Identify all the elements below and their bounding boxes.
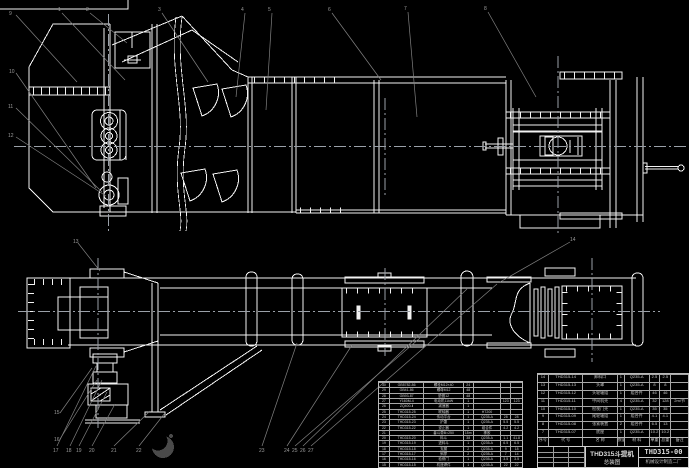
balloon-label: 1: [58, 7, 61, 13]
bom-row: 11 THD315-11 中间机壳 4 Q235-A 32 128 2m/节: [538, 398, 688, 406]
front-view-belt-and-buckets: [174, 17, 247, 231]
bom-header-material: 材 料: [625, 438, 650, 446]
bom-row: 7 THD315-07 底座 1 Q235-A 10.2 10.2: [538, 429, 688, 437]
bom-table-right: 14 THD315-14 卸料口 1 Q235-A 2.5 2.5 13 THD…: [537, 373, 689, 438]
bom-cell-name: 检视门壳: [583, 406, 618, 414]
bom-cell-remark: [671, 413, 688, 421]
revision-grid: [538, 447, 586, 467]
bom-cell-seq: 10: [538, 406, 549, 414]
bom-header-remark: 备注: [671, 438, 688, 446]
bom-cell-code: THD315-08: [549, 421, 584, 429]
drawing-number-cell: THD315-00 机械设计制造二厂: [639, 447, 688, 467]
balloon-label: 16: [54, 437, 60, 443]
bom-cell-total-weight: 2.5: [660, 374, 671, 382]
front-view-boot-section: [483, 72, 684, 228]
bom-cell-code: THD315-12: [549, 390, 584, 398]
balloon-label: 14: [570, 237, 576, 243]
company-name: 机械设计制造二厂: [639, 458, 688, 468]
centerlines: [14, 14, 686, 428]
bom-cell-total-weight: 10.2: [660, 429, 671, 437]
bom-cell-remark: [671, 429, 688, 437]
balloon-label: 7: [404, 6, 407, 12]
bom-row: 8 THD315-08 张紧装置 2 组合件 6.5 13: [538, 421, 688, 429]
bom-cell-material: Q235-A: [474, 462, 502, 467]
bom-cell-unit-weight: 8: [650, 382, 661, 390]
frame-corner: [0, 0, 128, 9]
balloon-label: 27: [308, 448, 314, 454]
bom-cell-seq: 15: [379, 462, 390, 467]
bom-cell-seq: 8: [538, 421, 549, 429]
bom-cell-total-weight: 46: [660, 390, 671, 398]
bom-cell-name: 头轮轴组: [583, 390, 618, 398]
bom-cell-unit-weight: 46: [650, 390, 661, 398]
bom-cell-material: Q235-A: [625, 406, 650, 414]
bom-cell-total-weight: 35: [660, 406, 671, 414]
balloon-label: 13: [73, 239, 79, 245]
bom-cell-name: 机座焊件: [424, 462, 463, 467]
bom-cell-seq: 9: [538, 413, 549, 421]
bom-cell-name: 张紧装置: [583, 421, 618, 429]
bom-cell-unit-weight: 2.5: [650, 374, 661, 382]
crescent-watermark: [149, 432, 175, 459]
drawing-name: 总装图: [604, 458, 621, 466]
plan-view-boot: [487, 268, 622, 357]
bom-row: 10 THD315-10 检视门壳 1 Q235-A 35 35: [538, 406, 688, 414]
balloon-label: 4: [241, 7, 244, 13]
balloon-label: 15: [54, 410, 60, 416]
bom-cell-remark: [671, 406, 688, 414]
bom-cell-total-weight: 13: [660, 421, 671, 429]
bom-header-seq: 序号: [538, 438, 549, 446]
bom-cell-seq: 13: [538, 382, 549, 390]
bom-cell-seq: 11: [538, 398, 549, 406]
bom-header-qty: 数量: [618, 438, 625, 446]
product-name: THD315斗提机: [590, 448, 634, 458]
bom-cell-material: 组合件: [625, 421, 650, 429]
balloon-label: 8: [484, 6, 487, 12]
bom-cell-qty: 1: [618, 390, 625, 398]
bom-cell-name: 头罩: [583, 382, 618, 390]
balloon-label: 20: [89, 448, 95, 454]
bom-cell-material: 组合件: [625, 390, 650, 398]
bom-cell-total-weight: 8: [660, 382, 671, 390]
bom-cell-code: THD315-07: [549, 429, 584, 437]
balloon-label: 21: [111, 448, 117, 454]
bom-cell-qty: 4: [618, 398, 625, 406]
bom-cell-material: Q235-A: [625, 382, 650, 390]
bom-cell-code: THD315-09: [549, 413, 584, 421]
bom-cell-qty: 2: [618, 421, 625, 429]
plan-view-drive-unit: [85, 283, 262, 423]
balloon-label: 5: [268, 7, 271, 13]
bom-header-name: 名 称: [583, 438, 618, 446]
bom-cell-qty: 1: [618, 406, 625, 414]
balloon-label: 11: [8, 104, 13, 110]
bom-cell-remark: [671, 390, 688, 398]
bom-cell-name: 卸料口: [583, 374, 618, 382]
plan-view-head: [27, 269, 158, 357]
bom-row: 9 THD315-09 尾轮轴组 1 组合件 4.1 4.1: [538, 413, 688, 421]
bom-cell-code: THD315-10: [549, 406, 584, 414]
balloon-label: 6: [328, 7, 331, 13]
bom-cell-code: THD315-11: [549, 398, 584, 406]
bom-row: 15 THD315-15 机座焊件 1 Q235-A 22 22: [379, 462, 522, 467]
bom-cell-code: THD315-15: [390, 462, 425, 467]
bom-cell-unit-weight: 10.2: [650, 429, 661, 437]
bom-cell-unit-weight: 22: [501, 462, 511, 467]
balloon-label: 12: [8, 133, 14, 139]
balloon-label: 25: [292, 448, 298, 454]
bom-cell-material: Q235-A: [625, 398, 650, 406]
bom-cell-total-weight: 128: [660, 398, 671, 406]
bom-row: 14 THD315-14 卸料口 1 Q235-A 2.5 2.5: [538, 374, 688, 382]
bom-row: 12 THD315-12 头轮轴组 1 组合件 46 46: [538, 390, 688, 398]
front-view-casing: [110, 77, 506, 213]
bom-cell-qty: 1: [464, 462, 474, 467]
drawing-title-cell: THD315斗提机 总装图: [586, 447, 639, 467]
cad-drawing-page: 1 2 3 4 5 6 7 8 9 10 11 12 13 14 15 16 1…: [0, 0, 689, 468]
bom-cell-unit-weight: 35: [650, 406, 661, 414]
bom-cell-remark: 2m/节: [671, 398, 688, 406]
title-block: THD315斗提机 总装图 THD315-00 机械设计制造二厂: [537, 446, 689, 468]
bom-cell-seq: 14: [538, 374, 549, 382]
bom-header-unit-weight: 单重: [650, 438, 661, 446]
bom-cell-material: 组合件: [625, 413, 650, 421]
bom-cell-remark: [671, 374, 688, 382]
balloon-label: 10: [9, 69, 15, 75]
bom-row: 13 THD315-13 头罩 1 Q235-A 8 8: [538, 382, 688, 390]
balloon-label: 23: [259, 448, 265, 454]
balloon-label: 22: [136, 448, 142, 454]
front-view-head-section: [29, 16, 248, 216]
drawing-number: THD315-00: [639, 447, 688, 458]
bom-cell-name: 中间机壳: [583, 398, 618, 406]
bom-cell-qty: 1: [618, 382, 625, 390]
bom-cell-material: Q235-A: [625, 429, 650, 437]
bom-cell-qty: 1: [618, 429, 625, 437]
bom-cell-unit-weight: 6.5: [650, 421, 661, 429]
balloon-label: 18: [66, 448, 72, 454]
bom-cell-code: THD315-13: [549, 382, 584, 390]
balloon-label: 3: [158, 7, 161, 13]
balloon-label: 24: [284, 448, 290, 454]
bom-cell-seq: 12: [538, 390, 549, 398]
balloon-label: 2: [86, 7, 89, 13]
bom-cell-name: 尾轮轴组: [583, 413, 618, 421]
balloon-label: 19: [76, 448, 82, 454]
bom-cell-total-weight: 22: [511, 462, 522, 467]
bom-cell-code: THD315-14: [549, 374, 584, 382]
bom-cell-remark: [671, 382, 688, 390]
bom-cell-unit-weight: 32: [650, 398, 661, 406]
bom-cell-seq: 7: [538, 429, 549, 437]
bom-cell-name: 底座: [583, 429, 618, 437]
balloon-label: 17: [53, 448, 59, 454]
bom-table-left: 30 GB5782-86 螺栓M12×40 24 29 GB41-86 螺母M1…: [378, 381, 523, 468]
balloon-label: 9: [9, 11, 12, 17]
bom-cell-material: Q235-A: [625, 374, 650, 382]
bom-cell-unit-weight: 4.1: [650, 413, 661, 421]
bom-cell-total-weight: 4.1: [660, 413, 671, 421]
bom-cell-qty: 1: [618, 374, 625, 382]
bom-header-total-weight: 总重: [660, 438, 671, 446]
bom-cell-qty: 1: [618, 413, 625, 421]
bom-cell-remark: [671, 421, 688, 429]
bom-header-code: 代 号: [549, 438, 584, 446]
balloon-label: 26: [300, 448, 306, 454]
